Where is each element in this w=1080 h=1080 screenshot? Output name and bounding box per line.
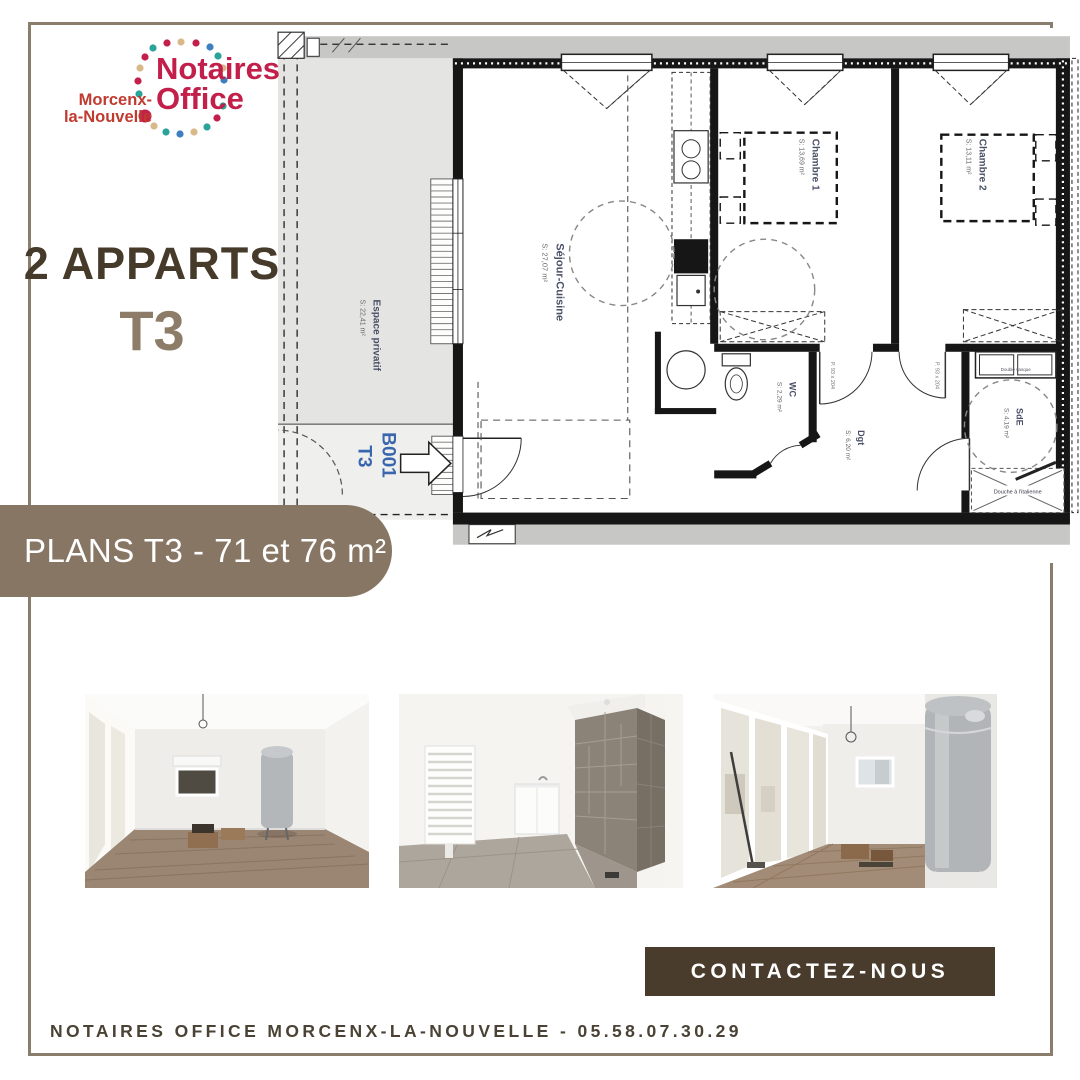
svg-text:S: 27,07 m²: S: 27,07 m²: [540, 243, 549, 282]
label-douche: Douche à l'italienne: [994, 489, 1042, 495]
photo-living-room-2: [713, 694, 997, 888]
label-sde: SdE: [1015, 408, 1025, 426]
svg-text:P. 93 x 204: P. 93 x 204: [933, 362, 939, 389]
label-dgt: Dgt: [856, 430, 866, 445]
headline: 2 APPARTS T3: [22, 238, 282, 363]
logo-location-line1: Morcenx-: [30, 92, 152, 109]
footer-contact-line: NOTAIRES OFFICE MORCENX-LA-NOUVELLE - 05…: [50, 1021, 742, 1042]
svg-text:S: 13,69 m²: S: 13,69 m²: [798, 139, 805, 176]
floor-plan-drawing: Espace privatif S: 22,41 m² Séjour-Cuisi…: [270, 28, 1080, 563]
label-wc: WC: [788, 382, 798, 398]
headline-line2: T3: [22, 298, 282, 363]
svg-text:P. 93 x 204: P. 93 x 204: [829, 362, 835, 389]
svg-text:S: 22,41 m²: S: 22,41 m²: [358, 300, 365, 337]
label-unit-code: B001: [378, 432, 399, 478]
photo-shower-room: [399, 694, 683, 888]
svg-text:S: 4,19 m²: S: 4,19 m²: [1003, 408, 1010, 439]
label-chambre1: Chambre 1: [810, 139, 821, 191]
label-double-vasque: Double vasque: [1001, 367, 1032, 372]
contact-button-label: CONTACTEZ-NOUS: [691, 960, 950, 984]
plan-meter-box: [469, 525, 515, 544]
logo-brand-line1: Notaires: [156, 54, 280, 84]
plans-banner-label: PLANS T3 - 71 et 76 m²: [0, 532, 387, 570]
label-sejour-cuisine: Séjour-Cuisine: [553, 243, 565, 321]
notaires-office-logo: Notaires Office Morcenx- la-Nouvelle: [30, 10, 320, 170]
svg-text:S: 13,11 m²: S: 13,11 m²: [964, 139, 971, 175]
plans-banner: PLANS T3 - 71 et 76 m²: [0, 505, 392, 597]
logo-brand-line2: Office: [156, 84, 280, 114]
headline-line1: 2 APPARTS: [22, 238, 282, 290]
svg-text:S: 2,29 m²: S: 2,29 m²: [776, 382, 783, 413]
svg-text:S: 6,20 m²: S: 6,20 m²: [844, 430, 851, 461]
label-unit-type: T3: [353, 445, 374, 467]
logo-location-text: Morcenx- la-Nouvelle: [30, 92, 152, 126]
photo-living-room-1: [85, 694, 369, 888]
logo-brand-text: Notaires Office: [156, 54, 280, 114]
floor-plan: Espace privatif S: 22,41 m² Séjour-Cuisi…: [270, 28, 1080, 563]
label-chambre2: Chambre 2: [977, 139, 988, 191]
contact-button[interactable]: CONTACTEZ-NOUS: [645, 947, 995, 996]
label-espace-privatif: Espace privatif: [371, 300, 382, 372]
logo-location-line2: la-Nouvelle: [30, 109, 152, 126]
